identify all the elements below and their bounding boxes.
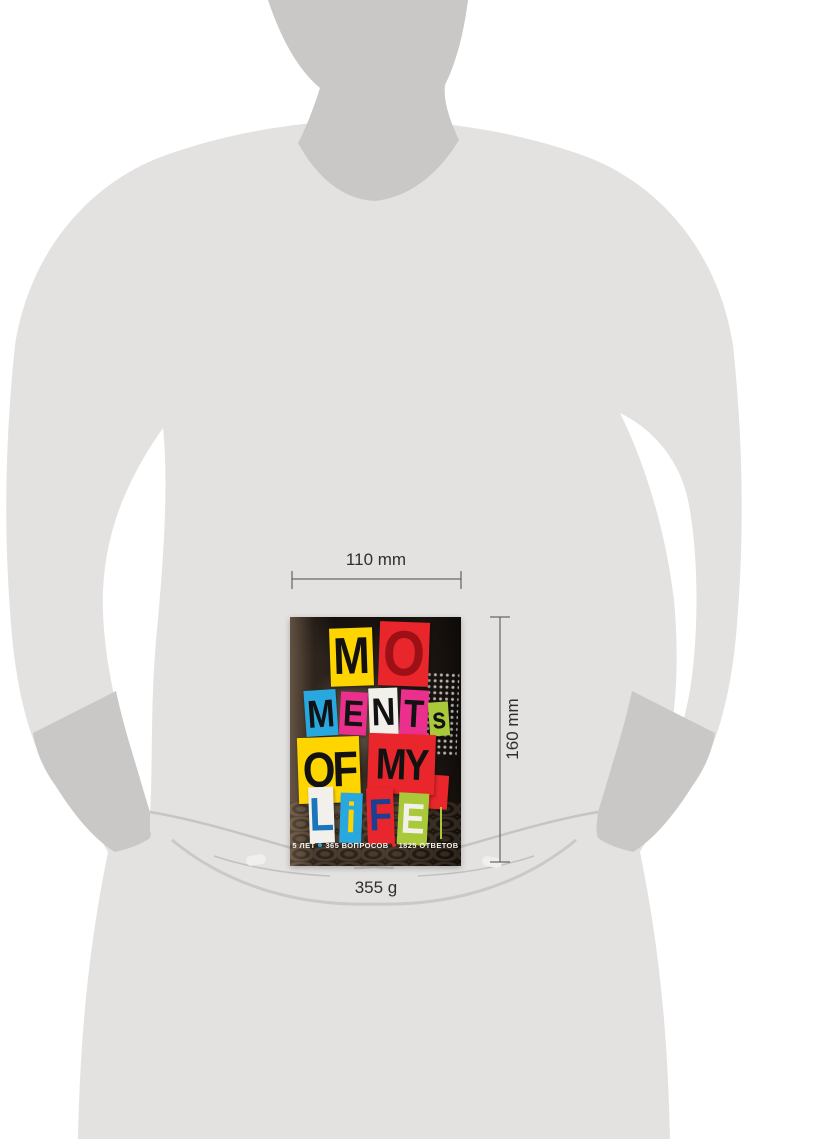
cover-letter: T: [403, 693, 425, 733]
cover-letter: MY: [375, 741, 428, 786]
cover-letter: M: [306, 693, 336, 734]
cover-letter: i: [345, 797, 356, 840]
cover-letter-block: M: [329, 627, 374, 686]
cover-letter: M: [332, 630, 370, 683]
cover-letter-block: E: [397, 792, 430, 845]
weight-label: 355 g: [330, 878, 422, 898]
cover-letter: F: [368, 793, 393, 839]
cover-letter-block: M: [303, 689, 338, 737]
cover-letter: E: [400, 797, 426, 841]
tagline-part: 365 ВОПРОСОВ: [325, 841, 388, 850]
cover-letter: L: [308, 791, 334, 839]
cover-letter-block: MY: [367, 733, 436, 795]
cover-letter: E: [342, 695, 365, 733]
cover-letter: N: [371, 692, 396, 732]
cover-letter: O: [382, 621, 426, 686]
cover-tagline: 5 ЛЕТ365 ВОПРОСОВ1825 ОТВЕТОВ: [290, 841, 461, 850]
separator-dot-icon: [318, 843, 322, 847]
product-size-mockup: M O M E N T s OF MY L i F E 5 ЛЕТ365 ВОП…: [0, 0, 820, 1139]
width-dimension-label: 110 mm: [330, 550, 422, 570]
separator-dot-icon: [392, 843, 396, 847]
cover-letter-block: E: [339, 691, 368, 735]
decor-paint-drip: [440, 807, 442, 839]
cover-letter: s: [431, 704, 447, 734]
cover-letter-block: i: [339, 793, 363, 844]
cover-letter-block: L: [308, 787, 335, 844]
book-cover: M O M E N T s OF MY L i F E 5 ЛЕТ365 ВОП…: [290, 617, 461, 866]
cover-letter-block: O: [378, 621, 430, 687]
cover-letter-block: T: [399, 689, 429, 736]
height-dimension-label: 160 mm: [503, 689, 523, 769]
tagline-part: 5 ЛЕТ: [292, 841, 315, 850]
cover-letter-block: F: [366, 788, 395, 845]
tagline-part: 1825 ОТВЕТОВ: [399, 841, 459, 850]
cover-letter-block: N: [368, 688, 399, 736]
cover-letter-block: s: [428, 701, 450, 736]
